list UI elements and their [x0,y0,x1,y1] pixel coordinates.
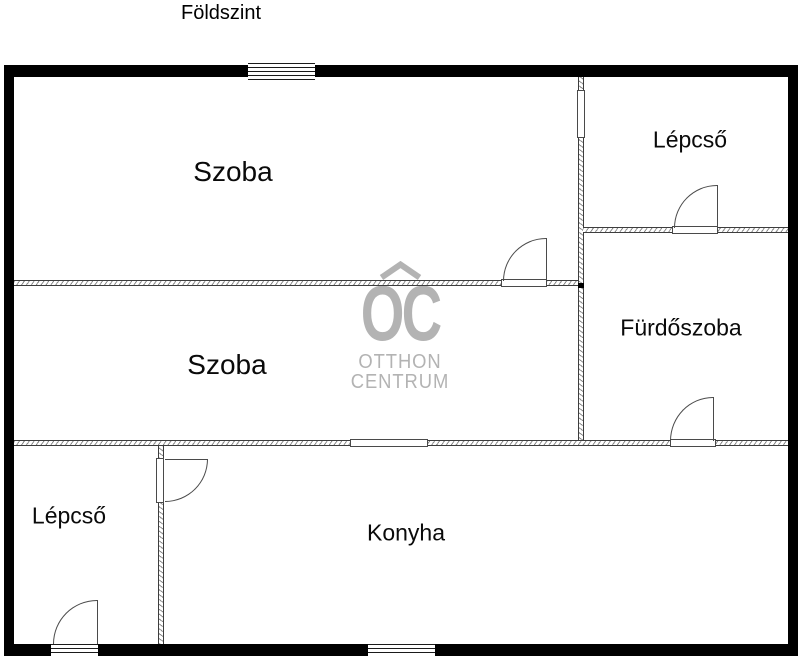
page-title: Földszint [181,2,261,25]
door-leaf-lepcso-upper [717,185,718,228]
room-label-lepcso-lower: Lépcső [32,503,106,530]
door-swing-arc-szoba [503,238,546,281]
door-swing-arc-furdoszoba [670,397,713,441]
passage-opening-szoba-konyha [350,439,428,447]
door-swing-arc-lepcso-upper [674,185,717,228]
outer-wall-top [4,65,798,77]
floorplan: Földszint OC OTTHON CENTRUM Szoba Szoba [0,0,800,656]
room-label-szoba-2: Szoba [187,349,266,381]
room-label-furdoszoba: Fürdőszoba [620,315,741,342]
wall-junction-tick [578,283,584,288]
door-swing-arc-konyha [165,459,208,502]
window-top-wall [248,63,315,80]
door-leaf-szoba [546,238,547,281]
interior-wall-szoba-divider [14,280,583,286]
entry-door-threshold [51,644,98,656]
logo-line2: CENTRUM [350,372,450,392]
room-label-lepcso-upper: Lépcső [653,127,727,154]
door-swing-arc-exit [53,600,97,644]
outer-wall-right [788,65,798,656]
door-opening-konyha [156,458,164,503]
window-bottom-wall [368,644,435,656]
logo-monogram: OC [361,282,439,344]
door-leaf-exit [97,600,98,644]
outer-wall-left [4,65,14,656]
room-label-szoba-1: Szoba [193,156,272,188]
logo-line1: OTTHON [350,352,450,372]
doorway-opening-hall [577,90,585,138]
door-leaf-furdoszoba [713,397,714,441]
room-label-konyha: Konyha [367,520,445,547]
